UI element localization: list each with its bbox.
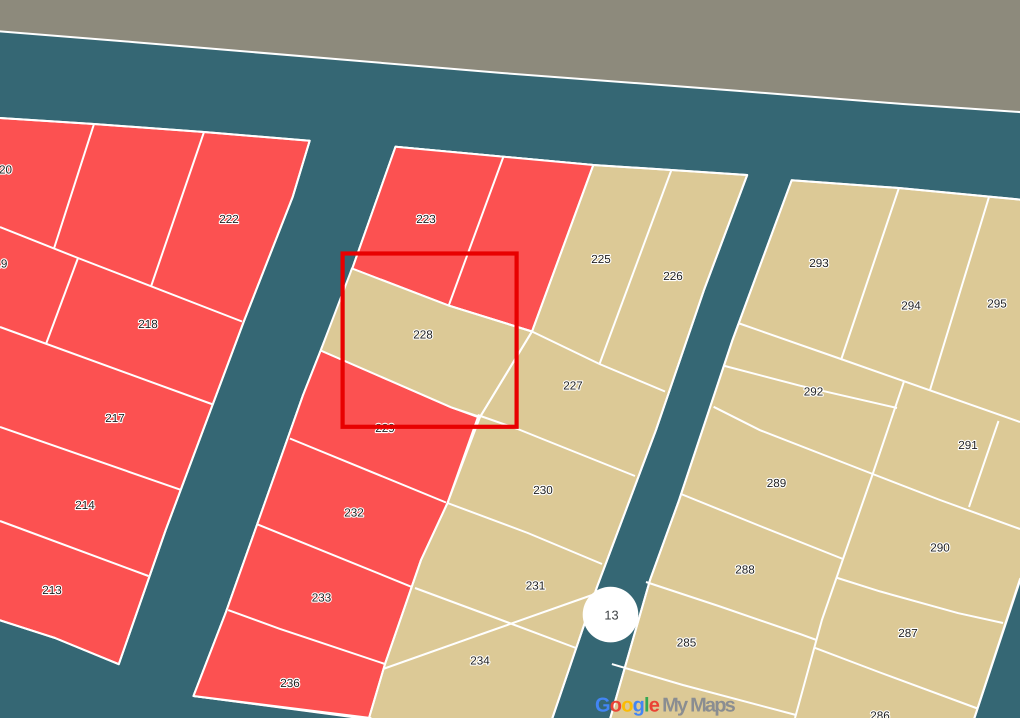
svg-text:291: 291 [958,439,978,452]
svg-text:217: 217 [105,412,125,425]
svg-text:220: 220 [0,164,13,177]
svg-text:225: 225 [591,253,611,266]
svg-text:13: 13 [604,607,618,622]
svg-text:293: 293 [809,257,829,270]
svg-text:222: 222 [219,213,239,226]
svg-text:233: 233 [312,592,332,605]
svg-text:213: 213 [42,584,62,597]
svg-text:219: 219 [0,258,7,271]
svg-text:295: 295 [987,298,1007,311]
svg-text:228: 228 [413,329,433,342]
svg-text:218: 218 [138,318,158,331]
svg-text:294: 294 [901,300,921,313]
svg-text:292: 292 [804,386,824,399]
svg-text:288: 288 [735,564,755,577]
svg-text:236: 236 [280,677,300,690]
svg-text:285: 285 [677,636,697,649]
svg-text:226: 226 [663,270,683,283]
svg-text:214: 214 [75,499,95,512]
svg-text:GoogleMy Maps: GoogleMy Maps [595,695,736,717]
svg-text:227: 227 [563,380,583,393]
svg-text:223: 223 [416,213,436,226]
svg-text:234: 234 [470,655,490,668]
svg-text:287: 287 [898,627,918,640]
svg-text:286: 286 [870,710,890,718]
svg-text:232: 232 [344,507,364,520]
svg-text:231: 231 [526,580,546,593]
svg-text:230: 230 [533,484,553,497]
svg-text:290: 290 [930,542,950,555]
svg-text:289: 289 [767,477,787,490]
